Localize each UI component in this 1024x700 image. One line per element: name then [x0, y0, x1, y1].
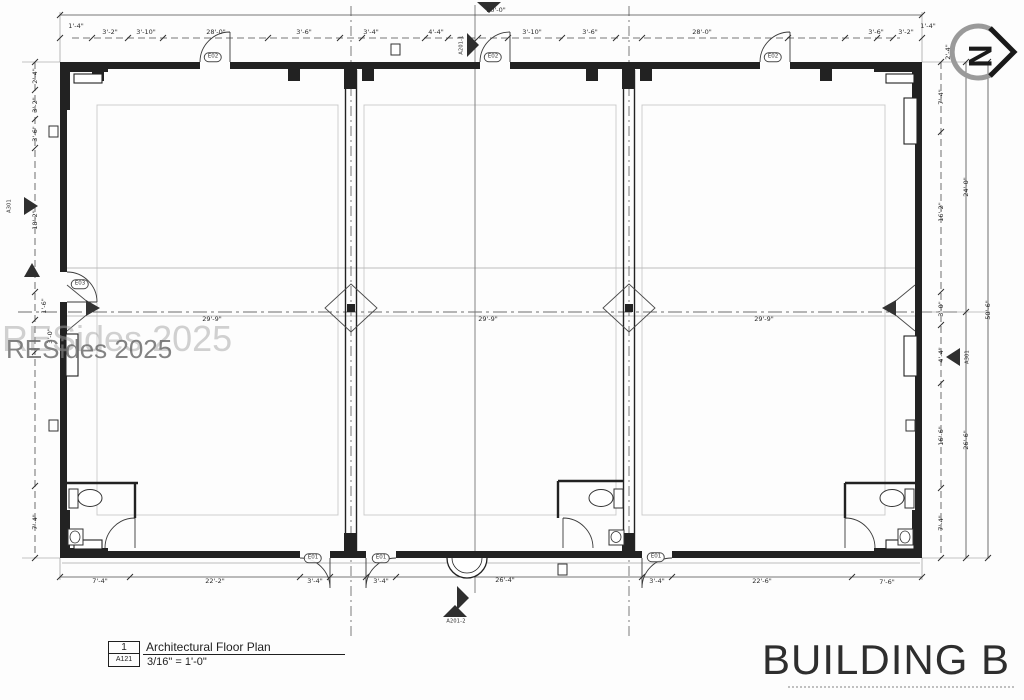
view-scale: 3/16" = 1'-0" [147, 656, 207, 668]
dimension-label: 3'-10" [136, 29, 156, 36]
dimension-label: 29'-9" [754, 316, 774, 323]
dimension-label: 1'-6" [41, 298, 48, 313]
door-tag: E01 [304, 553, 322, 563]
dimension-label: 90'-0" [486, 7, 506, 14]
dimension-label: 3'-6" [868, 29, 883, 36]
toilet-icon [78, 490, 102, 507]
dimension-label: 3'-2" [898, 29, 913, 36]
dimension-label: 26'-4" [495, 577, 515, 584]
section-ref-label: A201-1 [460, 35, 465, 54]
bathroom-right [845, 483, 915, 545]
dimension-label: 28'-0" [692, 29, 712, 36]
door-tag: E03 [71, 279, 89, 289]
door-swing-arc [845, 518, 875, 548]
dimension-label: 3'-4" [373, 578, 388, 585]
door-tag: E02 [484, 52, 502, 62]
door-swing-arc [105, 518, 135, 548]
dimension-label: 1'-4" [920, 23, 935, 30]
dimension-label: 4'-4" [428, 29, 443, 36]
building-title: BUILDING B [762, 636, 1010, 684]
ghost-lines [60, 105, 922, 563]
toilet-tank [905, 489, 914, 508]
column-diamonds [67, 284, 915, 332]
bathroom-middle [558, 481, 624, 545]
section-marker-bottom [443, 605, 467, 617]
fine-print-row [788, 686, 1016, 688]
section-marker-icons [24, 2, 960, 617]
dimension-label: 2'-4" [32, 68, 39, 83]
dimension-label: 3'-2" [32, 97, 39, 112]
dimension-label: 26'-6" [963, 430, 970, 450]
dimension-label: 3'-0" [47, 328, 54, 343]
fountain-alcove [447, 558, 487, 578]
dimension-label: 1'-4" [68, 23, 83, 30]
dimension-label: 16'-2" [938, 202, 945, 222]
exterior-walls [60, 62, 922, 558]
detail-number: 1 [109, 642, 139, 654]
dimension-label: 3'-6" [32, 126, 39, 141]
view-title: Architectural Floor Plan [146, 640, 271, 654]
dimension-label: 24'-0" [963, 177, 970, 197]
door-swings [67, 32, 875, 588]
north-arrow-icon: N [952, 26, 1014, 78]
elevation-ref-label: A301 [8, 199, 13, 213]
dimension-label: 7'-4" [32, 514, 39, 529]
section-marker-top-arrow [467, 33, 479, 57]
dimension-label: 28'-0" [206, 29, 226, 36]
section-ref-label: A201-2 [446, 620, 465, 625]
floor-plan-sheet: N 90'-0"1'-4"3'-2"3'-10"28'-0"3'-6"3'-4"… [0, 0, 1024, 700]
toilet-tank [69, 489, 78, 508]
interior-walls [346, 70, 635, 551]
door-tag: E01 [372, 553, 390, 563]
door-tag: E02 [764, 52, 782, 62]
bathroom-left [67, 483, 138, 545]
toilet-icon [880, 490, 904, 507]
dimension-label: 3'-2" [102, 29, 117, 36]
dimension-label: 29'-9" [478, 316, 498, 323]
dimension-label: 29'-9" [202, 316, 222, 323]
dimension-label: 22'-6" [752, 578, 772, 585]
corner-panels [66, 74, 917, 549]
section-marker-bottom-arrow [457, 586, 469, 610]
dimension-label: 3'-0" [938, 301, 945, 316]
detail-number-box: 1 A121 [108, 641, 140, 667]
dimension-label: 3'-10" [522, 29, 542, 36]
elevation-ref-label: A301 [966, 350, 971, 364]
elevation-marker-left-2 [24, 263, 40, 277]
title-underline [143, 654, 345, 655]
door-tag: E02 [204, 52, 222, 62]
toilet-tank [614, 489, 623, 508]
tick-marks [32, 12, 991, 580]
sheet-number: A121 [109, 654, 139, 663]
dimension-label: 7'-4" [938, 89, 945, 104]
dimension-label: 3'-4" [307, 578, 322, 585]
keynote-boxes [49, 44, 915, 575]
dimension-label: 50'-6" [985, 300, 992, 320]
toilet-icon [589, 490, 613, 507]
north-label: N [962, 44, 998, 67]
dimension-label: 7'-6" [879, 579, 894, 586]
dimension-label: 3'-4" [363, 29, 378, 36]
corner-details [60, 62, 922, 558]
dimension-label: 2'-4" [945, 44, 952, 59]
floor-plan-canvas: N [0, 0, 1024, 700]
dimension-label: 18'-2" [32, 210, 39, 230]
dimension-label: 16'-6" [938, 426, 945, 446]
door-swing-arc [563, 518, 593, 548]
dimension-label: 22'-2" [205, 578, 225, 585]
dimension-label: 7'-4" [92, 578, 107, 585]
dimension-label: 3'-6" [582, 29, 597, 36]
dimension-label: 4'-4" [938, 347, 945, 362]
door-tag: E01 [647, 552, 665, 562]
elevation-marker-right [946, 348, 960, 366]
dimension-label: 7'-4" [938, 515, 945, 530]
dimension-label: 3'-6" [296, 29, 311, 36]
dimension-label: 3'-4" [649, 578, 664, 585]
